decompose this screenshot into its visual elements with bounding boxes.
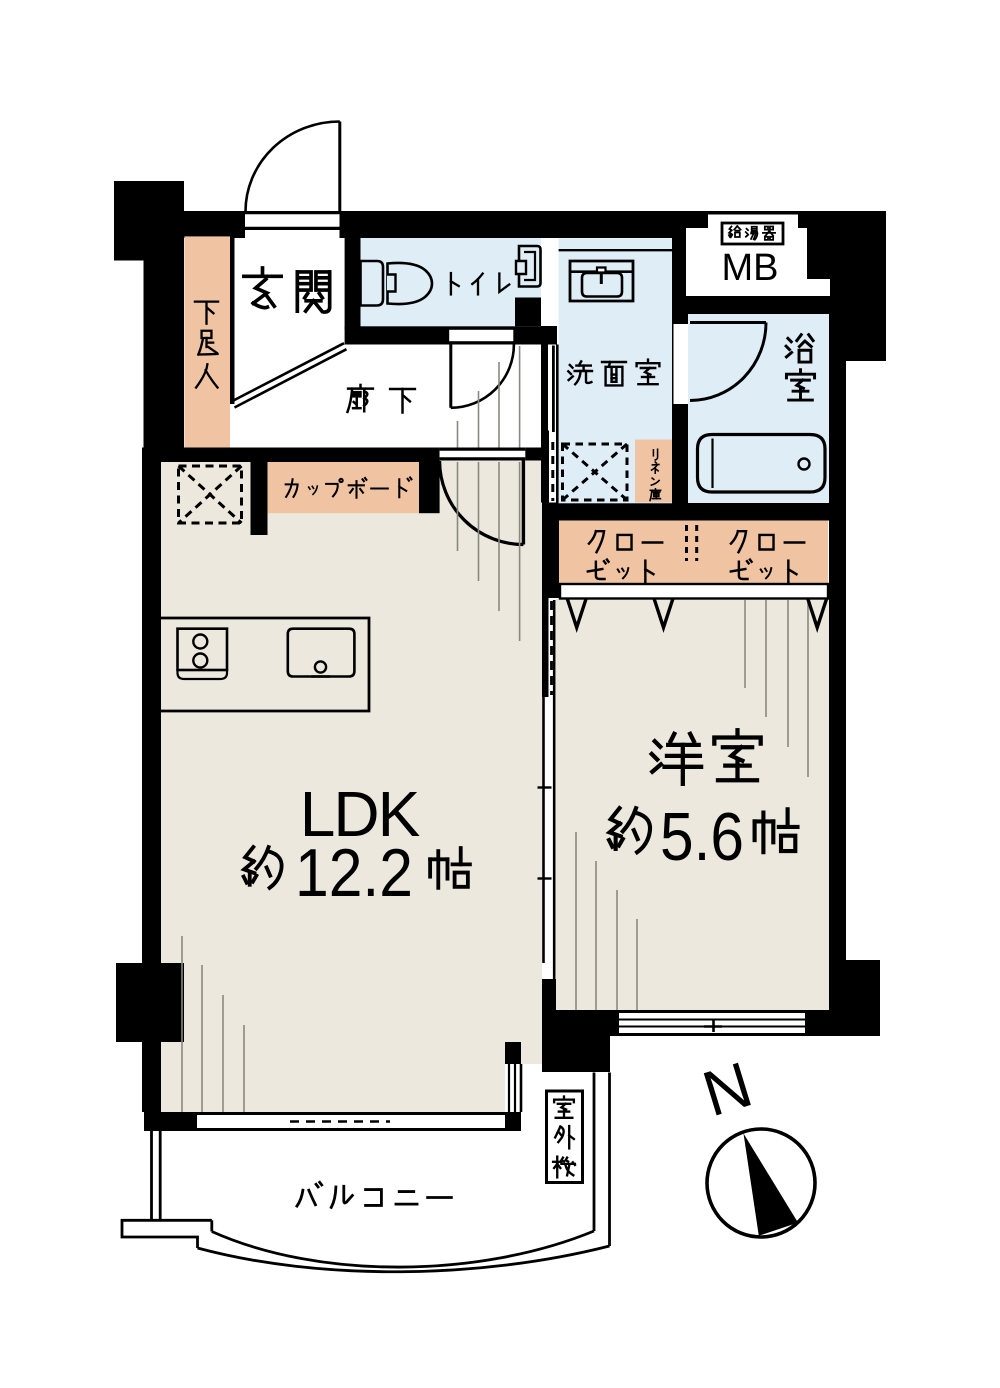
- svg-text:5.6: 5.6: [660, 799, 744, 875]
- svg-text:12.2: 12.2: [295, 835, 413, 911]
- svg-text:MB: MB: [722, 247, 779, 289]
